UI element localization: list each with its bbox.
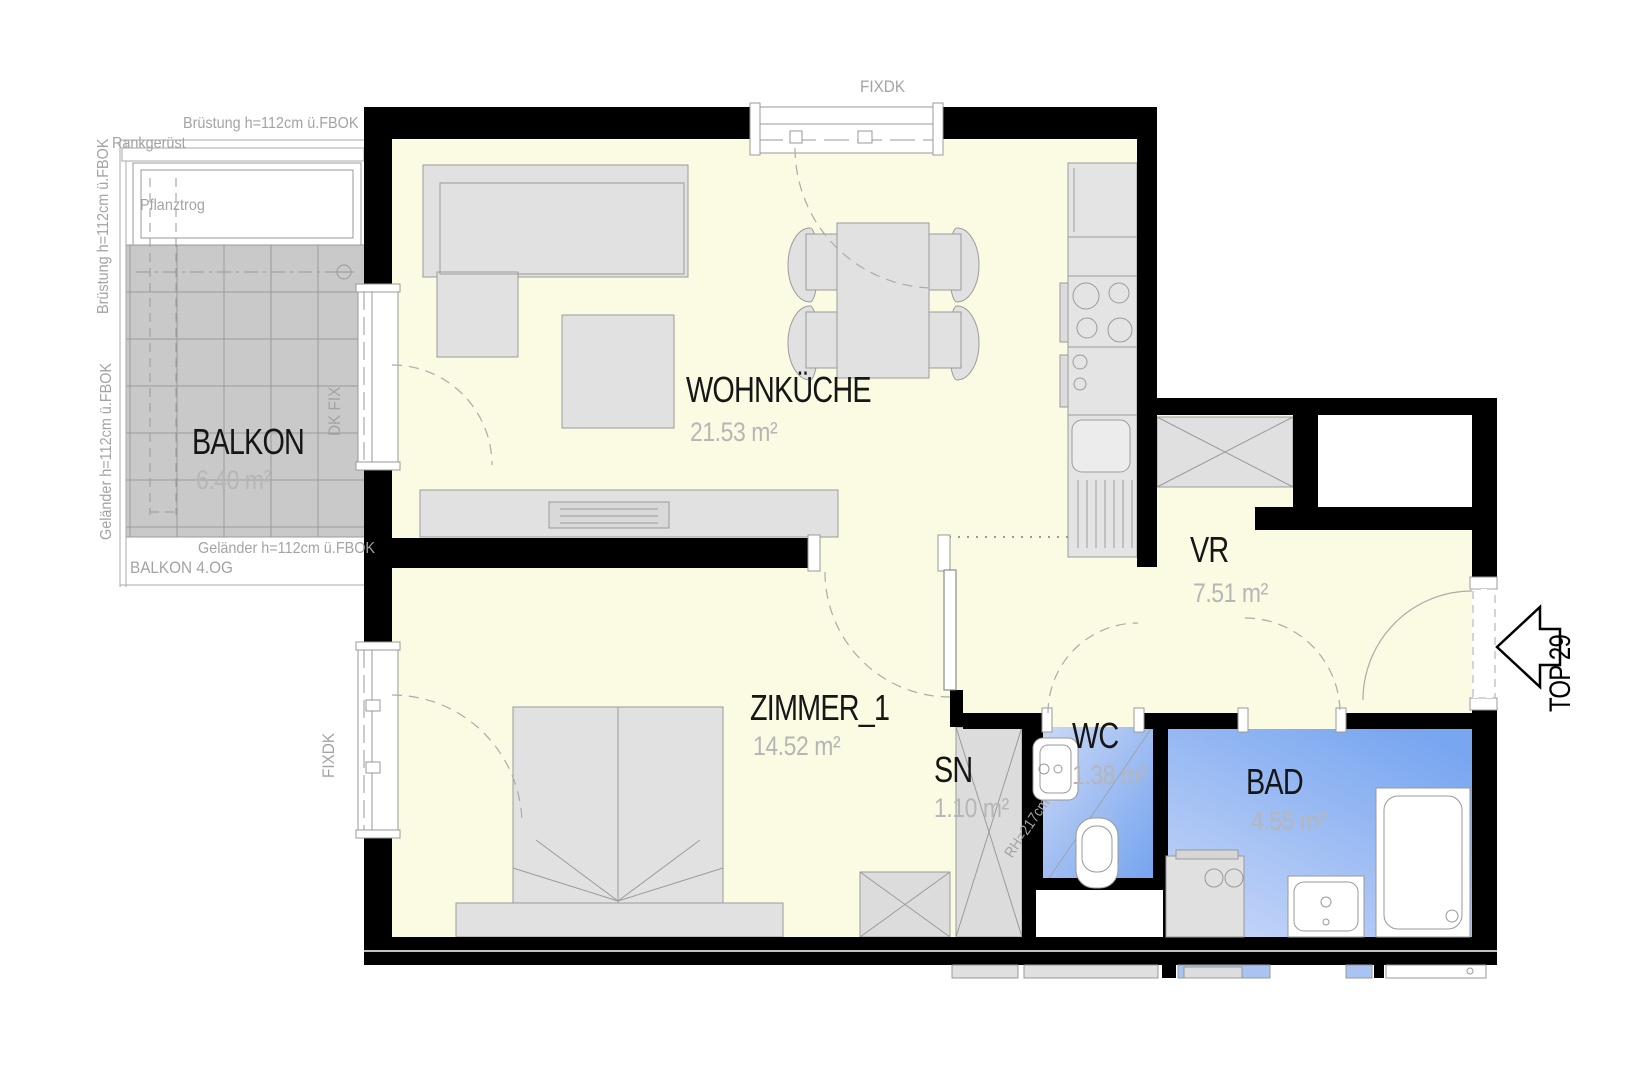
room-area-sn: 1.10 m² bbox=[934, 795, 1009, 822]
room-label-balkon: BALKON bbox=[192, 424, 304, 460]
window-top-label: FIXDK bbox=[860, 78, 905, 95]
room-area-vr: 7.51 m² bbox=[1193, 580, 1268, 607]
room-label-sn: SN bbox=[934, 752, 972, 788]
door-leaf-zimmer bbox=[944, 570, 956, 690]
room-label-zimmer1: ZIMMER_1 bbox=[750, 690, 889, 726]
plan-geometry bbox=[0, 0, 1637, 1067]
planter-label: Pflanztrog bbox=[140, 198, 205, 214]
window-bedroom-fixdk bbox=[356, 642, 400, 838]
room-label-bad: BAD bbox=[1246, 764, 1303, 800]
bedroom-window-label: FIXDK bbox=[320, 733, 337, 778]
wardrobe-crossed bbox=[860, 872, 950, 937]
parapet-left-label: Brüstung h=112cm ü.FBOK bbox=[96, 139, 112, 314]
adjacent-unit-strip bbox=[952, 965, 1486, 978]
entrance-door bbox=[1473, 589, 1495, 698]
sideboard bbox=[420, 490, 838, 537]
parapet-top-label: Brüstung h=112cm ü.FBOK bbox=[183, 116, 358, 132]
balcony-door-label: DK FIX bbox=[326, 387, 343, 436]
railing-left-label: Geländer h=112cm ü.FBOK bbox=[99, 363, 115, 540]
railing-bottom-label: Geländer h=112cm ü.FBOK bbox=[198, 541, 375, 557]
kitchen-counter bbox=[1060, 163, 1137, 557]
side-table bbox=[562, 315, 674, 428]
balkon-floor-label: BALKON 4.OG bbox=[130, 559, 233, 576]
vr-closet-crossed bbox=[1157, 417, 1293, 487]
room-area-wohnkueche: 21.53 m² bbox=[690, 419, 777, 446]
shaft-top bbox=[1318, 415, 1472, 507]
room-area-bad: 4.55 m² bbox=[1251, 808, 1326, 835]
room-label-wc: WC bbox=[1072, 718, 1118, 754]
trellis-label: Rankgerüst bbox=[112, 136, 186, 152]
washing-machine bbox=[1166, 856, 1244, 937]
window-top-fixdk bbox=[750, 103, 943, 155]
room-label-vr: VR bbox=[1190, 532, 1228, 568]
room-label-wohnkueche: WOHNKÜCHE bbox=[686, 372, 871, 408]
window-balcony-door bbox=[356, 284, 400, 470]
floor-plan: WOHNKÜCHE 21.53 m² ZIMMER_1 14.52 m² VR … bbox=[0, 0, 1637, 1067]
shaft-wc bbox=[1036, 890, 1163, 937]
room-area-balkon: 6.40 m² bbox=[196, 467, 271, 494]
kitchen-sink bbox=[1072, 420, 1130, 472]
unit-number-label: TOP 29 bbox=[1546, 635, 1576, 712]
room-area-zimmer1: 14.52 m² bbox=[753, 733, 840, 760]
bathtub bbox=[1376, 788, 1470, 937]
room-area-wc: 1.38 m² bbox=[1072, 762, 1147, 789]
